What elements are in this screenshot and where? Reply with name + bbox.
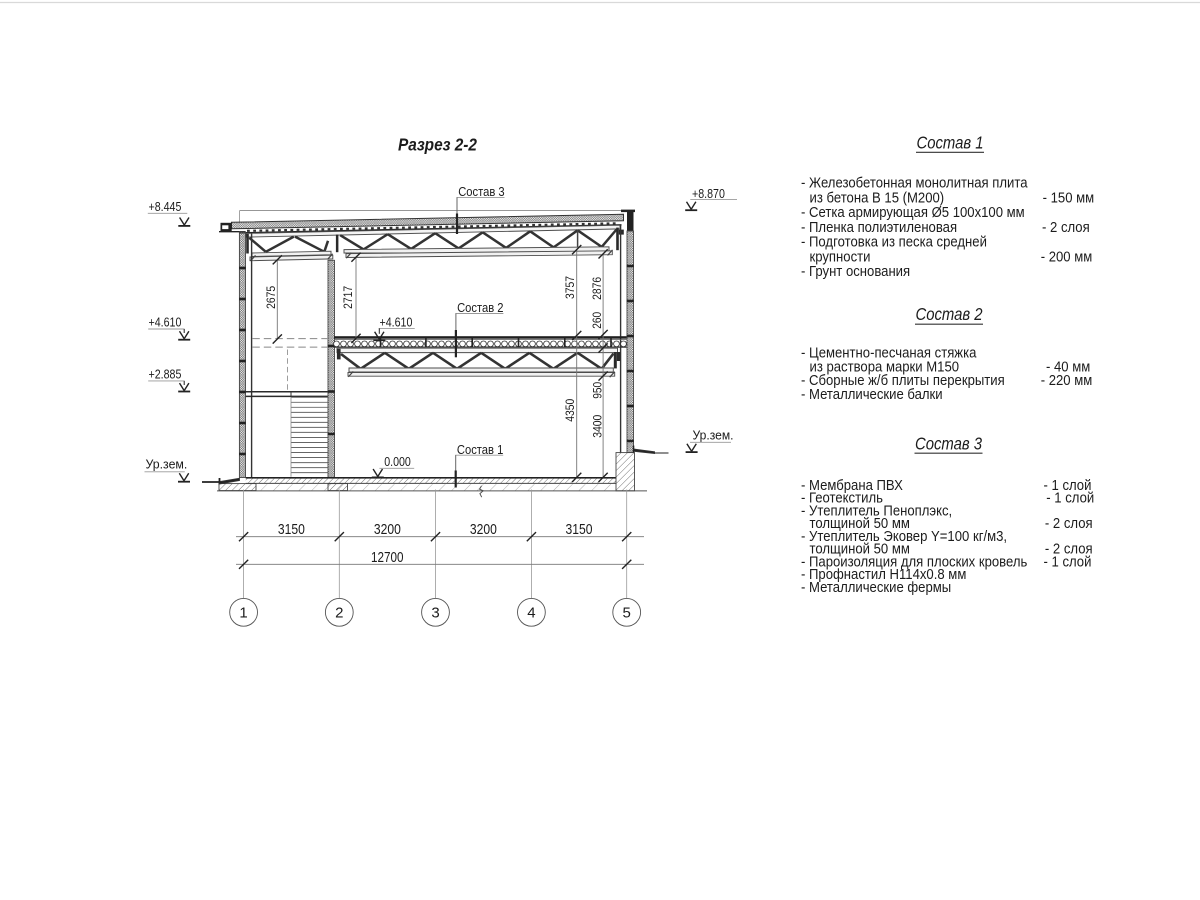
svg-text:3200: 3200 — [470, 521, 497, 537]
svg-text:- Металлические фермы: - Металлические фермы — [801, 578, 951, 595]
svg-text:Состав 3: Состав 3 — [915, 434, 982, 453]
svg-text:4: 4 — [527, 604, 535, 621]
svg-text:260: 260 — [592, 312, 604, 329]
svg-text:Ур.зем.: Ур.зем. — [146, 457, 188, 471]
svg-text:- 1 слой: - 1 слой — [1044, 553, 1092, 570]
svg-text:3150: 3150 — [278, 521, 305, 537]
svg-text:- 2 слоя: - 2 слоя — [1045, 514, 1093, 531]
svg-text:4350: 4350 — [565, 399, 577, 422]
svg-text:- 150 мм: - 150 мм — [1043, 188, 1095, 205]
svg-text:1: 1 — [239, 604, 247, 621]
svg-text:- 2 слоя: - 2 слоя — [1042, 218, 1090, 235]
svg-text:Разрез 2-2: Разрез 2-2 — [398, 136, 477, 155]
svg-text:- 1 слой: - 1 слой — [1046, 489, 1094, 506]
svg-text:+4.610: +4.610 — [149, 314, 182, 329]
svg-text:950: 950 — [593, 382, 605, 399]
svg-text:- 200 мм: - 200 мм — [1041, 248, 1093, 265]
svg-text:- Металлические балки: - Металлические балки — [801, 385, 943, 402]
svg-text:3200: 3200 — [374, 521, 401, 537]
svg-text:2675: 2675 — [266, 286, 278, 309]
svg-text:2717: 2717 — [343, 286, 355, 309]
svg-text:3757: 3757 — [565, 276, 577, 299]
svg-text:0.000: 0.000 — [384, 454, 411, 469]
svg-text:3: 3 — [431, 604, 439, 621]
svg-text:- 220 мм: - 220 мм — [1041, 371, 1093, 388]
svg-text:+2.885: +2.885 — [149, 366, 182, 381]
svg-text:2876: 2876 — [592, 277, 604, 300]
svg-text:+4.610: +4.610 — [380, 314, 413, 329]
svg-text:12700: 12700 — [371, 549, 403, 566]
svg-text:Состав 1: Состав 1 — [916, 133, 983, 152]
svg-text:Состав 2: Состав 2 — [915, 305, 982, 324]
svg-text:3150: 3150 — [566, 521, 593, 537]
svg-text:5: 5 — [623, 604, 631, 621]
svg-text:3400: 3400 — [592, 415, 604, 438]
svg-text:Ур.зем.: Ур.зем. — [693, 428, 734, 442]
svg-text:2: 2 — [335, 604, 343, 621]
svg-text:- Грунт основания: - Грунт основания — [801, 262, 910, 279]
svg-text:+8.445: +8.445 — [149, 199, 182, 214]
